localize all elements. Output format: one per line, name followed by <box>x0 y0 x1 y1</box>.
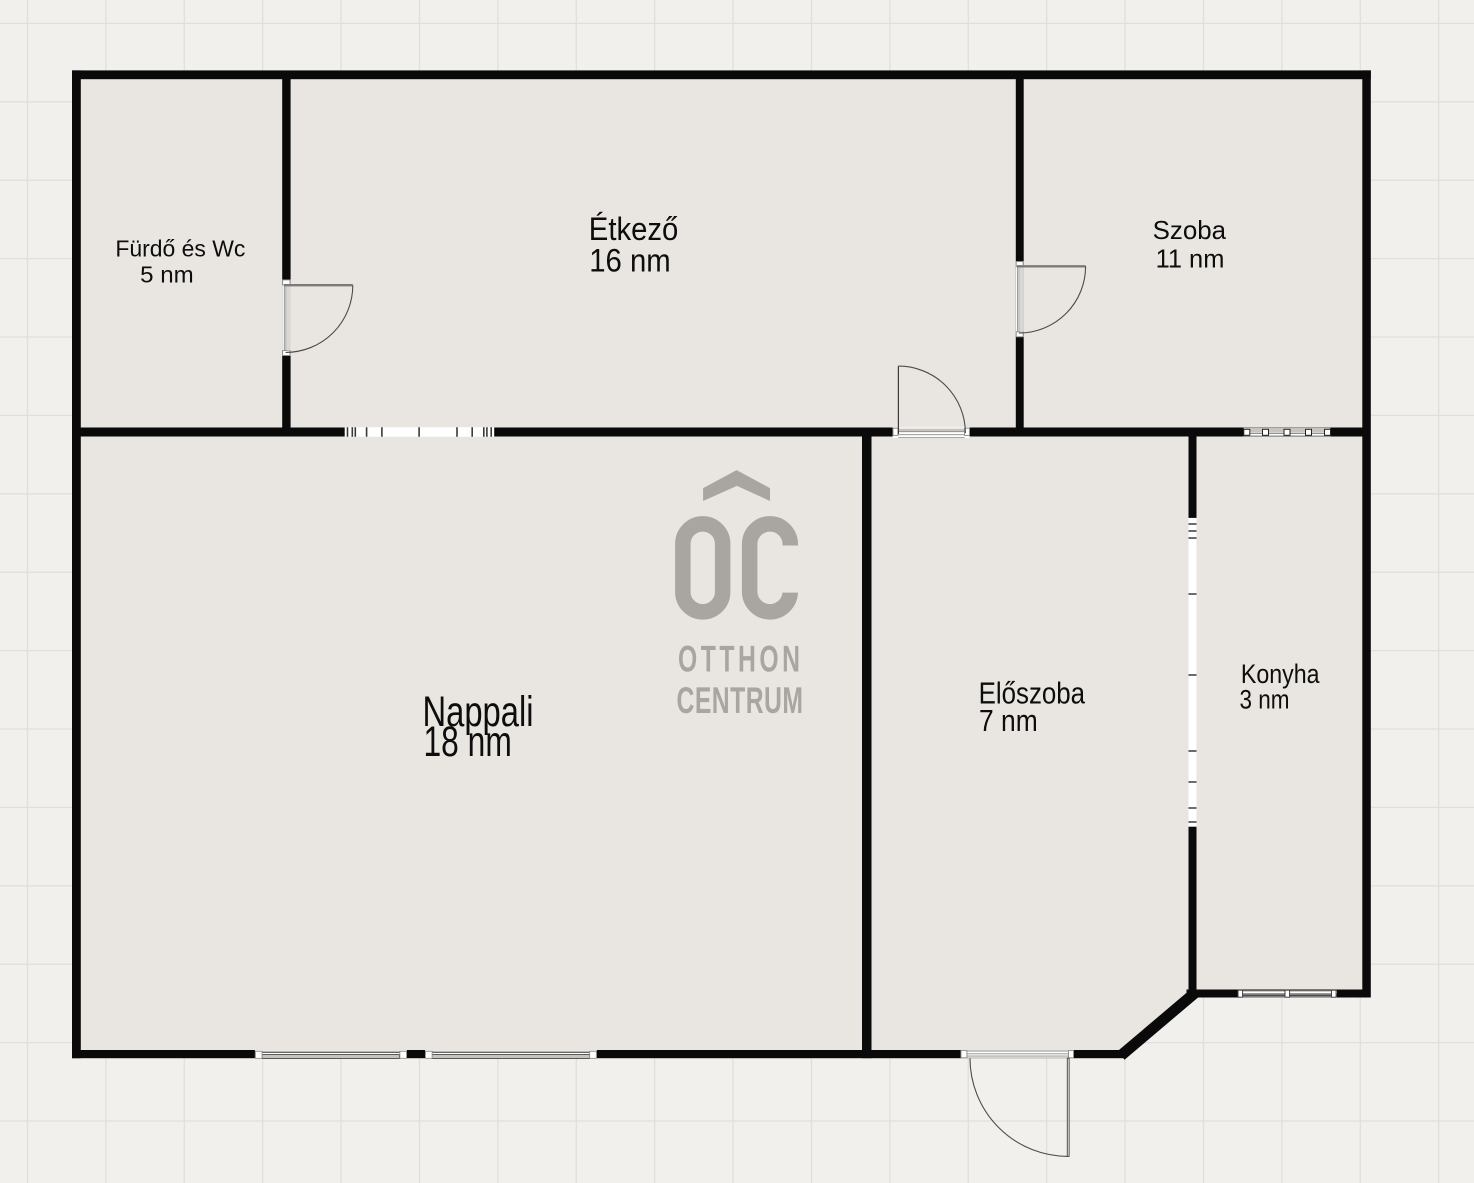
svg-text:Fürdő és Wc: Fürdő és Wc <box>115 235 245 261</box>
svg-text:16 nm: 16 nm <box>589 242 671 279</box>
svg-text:CENTRUM: CENTRUM <box>677 679 804 721</box>
svg-text:11 nm: 11 nm <box>1156 245 1225 273</box>
svg-text:5 nm: 5 nm <box>140 261 194 287</box>
svg-text:Szoba: Szoba <box>1153 217 1227 245</box>
svg-text:7 nm: 7 nm <box>979 704 1038 738</box>
svg-text:OTTHON: OTTHON <box>678 637 800 679</box>
svg-text:18 nm: 18 nm <box>424 718 512 766</box>
svg-text:3 nm: 3 nm <box>1240 685 1290 715</box>
